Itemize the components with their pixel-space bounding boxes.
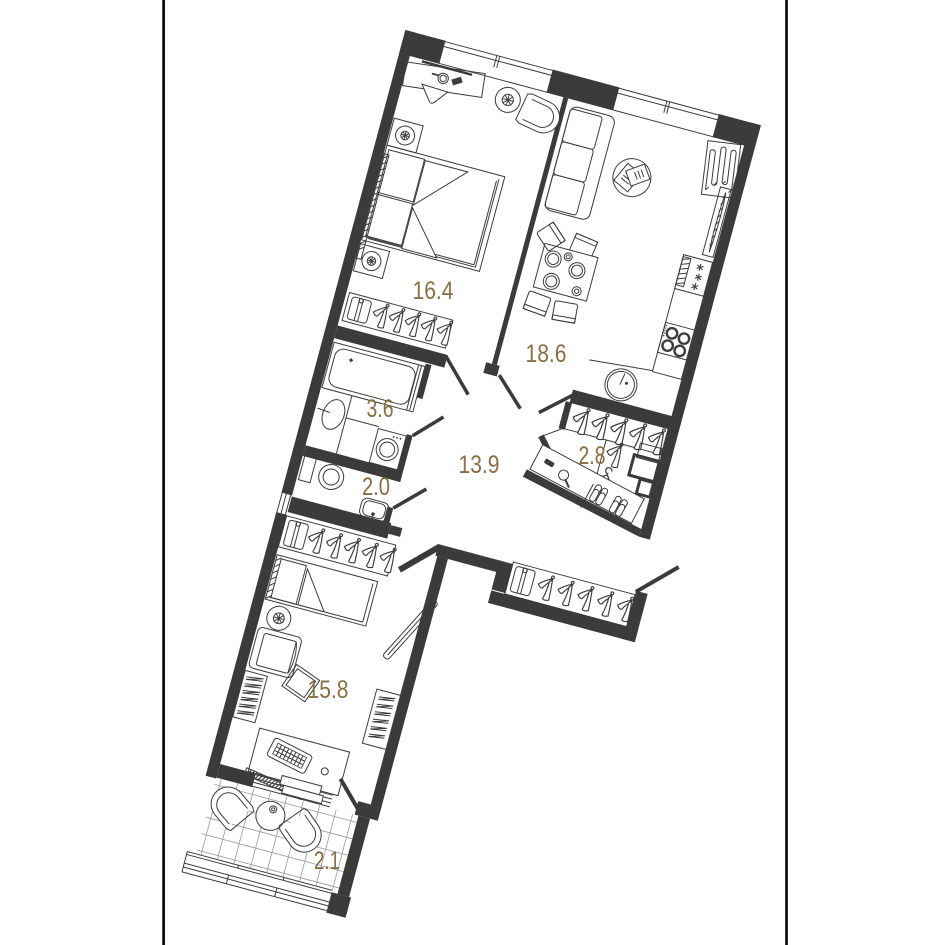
svg-text:15.8: 15.8 — [308, 676, 349, 704]
svg-text:16.4: 16.4 — [413, 277, 454, 305]
svg-text:2.8: 2.8 — [579, 442, 606, 470]
svg-text:2.1: 2.1 — [314, 847, 340, 875]
svg-text:18.6: 18.6 — [526, 340, 567, 368]
svg-text:2.0: 2.0 — [362, 473, 390, 501]
svg-text:13.9: 13.9 — [459, 451, 500, 479]
svg-text:3.6: 3.6 — [367, 395, 394, 423]
